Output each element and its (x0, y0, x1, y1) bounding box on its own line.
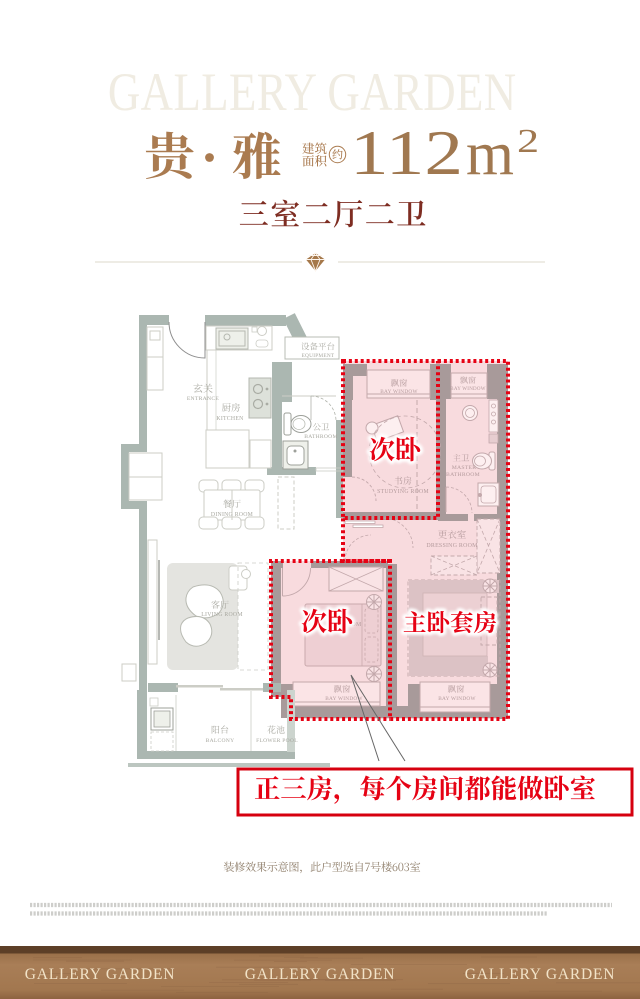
svg-text:LIVING ROOM: LIVING ROOM (201, 612, 243, 618)
svg-text:BATHROOM: BATHROOM (304, 434, 337, 440)
svg-text:DINING ROOM: DINING ROOM (211, 512, 253, 518)
svg-text:GALLERY GARDEN: GALLERY GARDEN (108, 62, 517, 122)
svg-text:STUDYING ROOM: STUDYING ROOM (377, 489, 429, 495)
svg-text:GALLERY GARDEN: GALLERY GARDEN (245, 966, 396, 983)
svg-text:BAY WINDOW: BAY WINDOW (325, 696, 362, 702)
svg-text:DRESSING ROOM: DRESSING ROOM (426, 543, 478, 549)
svg-text:GALLERY GARDEN: GALLERY GARDEN (465, 966, 616, 983)
svg-text:KITCHEN: KITCHEN (216, 416, 244, 422)
svg-text:2: 2 (517, 122, 539, 160)
svg-text:EQUIPMENT: EQUIPMENT (302, 353, 335, 359)
svg-text:BAY WINDOW: BAY WINDOW (450, 387, 486, 392)
svg-text:MASTER: MASTER (452, 465, 477, 471)
svg-text:FLOWER POOL: FLOWER POOL (256, 738, 298, 744)
svg-text:BALCONY: BALCONY (206, 738, 235, 744)
svg-text:BAY WINDOW: BAY WINDOW (438, 696, 475, 702)
svg-text:BATHROOM: BATHROOM (446, 472, 480, 478)
svg-text:BAY WINDOW: BAY WINDOW (380, 389, 417, 395)
svg-text:112: 112 (350, 117, 463, 188)
svg-text:m: m (466, 120, 514, 188)
svg-text:GALLERY GARDEN: GALLERY GARDEN (25, 966, 176, 983)
svg-text:ENTRANCE: ENTRANCE (187, 396, 220, 402)
